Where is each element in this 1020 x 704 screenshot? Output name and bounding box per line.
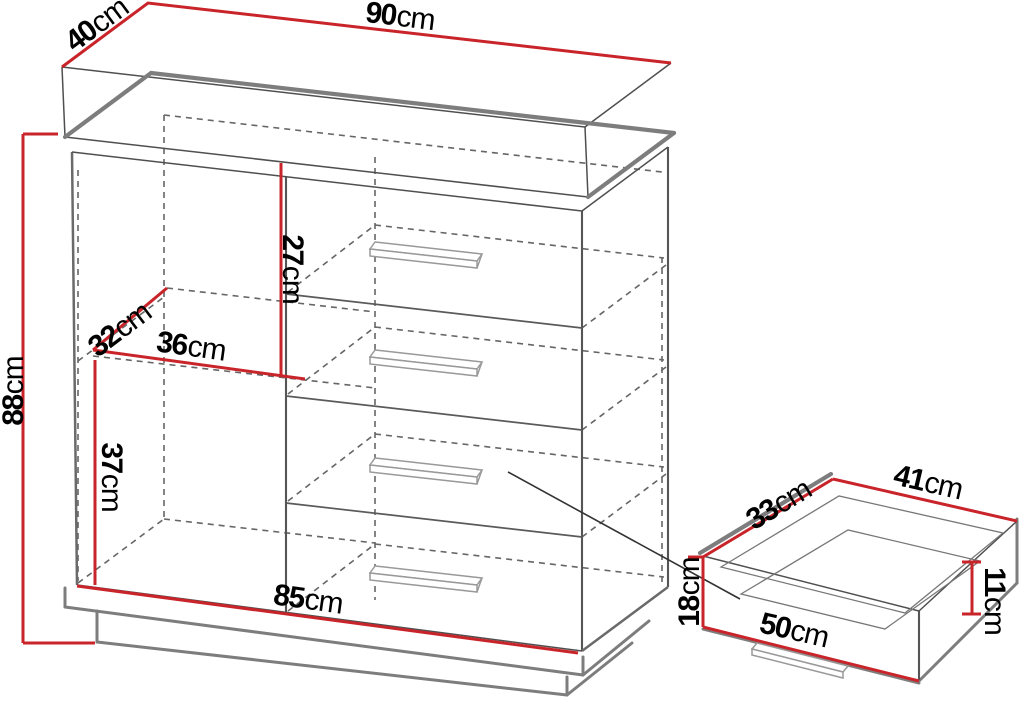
hidden-shelf-front-edge <box>93 356 375 388</box>
dim-value: 90 <box>364 0 398 32</box>
slab-left-corner-edge <box>62 67 65 137</box>
dim-value: 88 <box>0 395 30 425</box>
slab-right-corner-edge <box>585 127 588 197</box>
dim-value: 11 <box>978 567 1011 596</box>
dim-unit: cm <box>978 597 1011 635</box>
bottom-board-back-edge <box>583 621 649 675</box>
dim-value: 36 <box>154 325 189 362</box>
body-front-top-edge <box>72 152 582 211</box>
hidden-side-depth-edge-2 <box>582 367 666 430</box>
slab-underside-front-edge <box>65 137 588 197</box>
furniture-dimension-diagram: 90cm 40cm 88cm 27cm 32cm 36cm 37cm 85cm … <box>0 0 1020 704</box>
dim-label-drawer-front-height: 18cm <box>675 557 705 626</box>
plinth-bottom-edge <box>97 642 567 695</box>
cabinet-base <box>65 588 649 695</box>
dim-unit: cm <box>673 557 706 595</box>
hidden-drawerbox2-depth-edge <box>288 327 375 394</box>
dim-label-total-height: 88cm <box>0 356 29 425</box>
dim-unit: cm <box>0 356 30 394</box>
dim-value: 27 <box>276 234 309 264</box>
drawer-handle-3 <box>370 458 482 484</box>
drawer-separator-2 <box>286 396 582 430</box>
hidden-floor-back-edge <box>164 519 375 543</box>
body-front-left-edge <box>72 152 77 585</box>
hidden-side-depth-edge-3 <box>582 474 666 537</box>
top-face-front-edge <box>62 67 585 127</box>
cabinet-top-slab <box>62 63 674 197</box>
drawer-handle-2 <box>370 350 482 376</box>
drawer-handle-1 <box>370 242 482 268</box>
dim-unit: cm <box>276 266 309 304</box>
hidden-drawerbox3-back-edge <box>375 434 664 467</box>
dim-unit: cm <box>185 330 227 368</box>
drawer-handle-4 <box>370 566 482 592</box>
dim-value: 37 <box>95 442 128 472</box>
dim-unit: cm <box>302 583 344 621</box>
diagram-canvas <box>0 0 1020 704</box>
hidden-floor-depth-edge <box>78 519 164 583</box>
dim-unit: cm <box>95 474 128 512</box>
drawer-separator-3 <box>286 503 582 537</box>
dim-value: 85 <box>271 578 306 615</box>
dim-label-upper-section-height: 27cm <box>277 234 307 303</box>
dim-label-drawer-side-height: 11cm <box>979 567 1009 635</box>
dim-label-lower-section-height: 37cm <box>96 442 126 511</box>
side-panel-top-edge <box>582 147 668 211</box>
drawer-separator-1 <box>286 294 582 328</box>
slab-underside-back-edge <box>151 73 674 133</box>
hidden-side-depth-edge-1 <box>582 265 666 328</box>
dim-unit: cm <box>395 0 437 37</box>
drawer-front-top-edge <box>703 556 919 611</box>
top-face-right-edge <box>585 63 671 127</box>
dim-value: 18 <box>673 596 706 626</box>
hidden-drawerbox3-depth-edge <box>288 434 375 501</box>
slab-underside-left-edge <box>65 73 151 137</box>
slab-underside-right-edge <box>588 133 674 197</box>
